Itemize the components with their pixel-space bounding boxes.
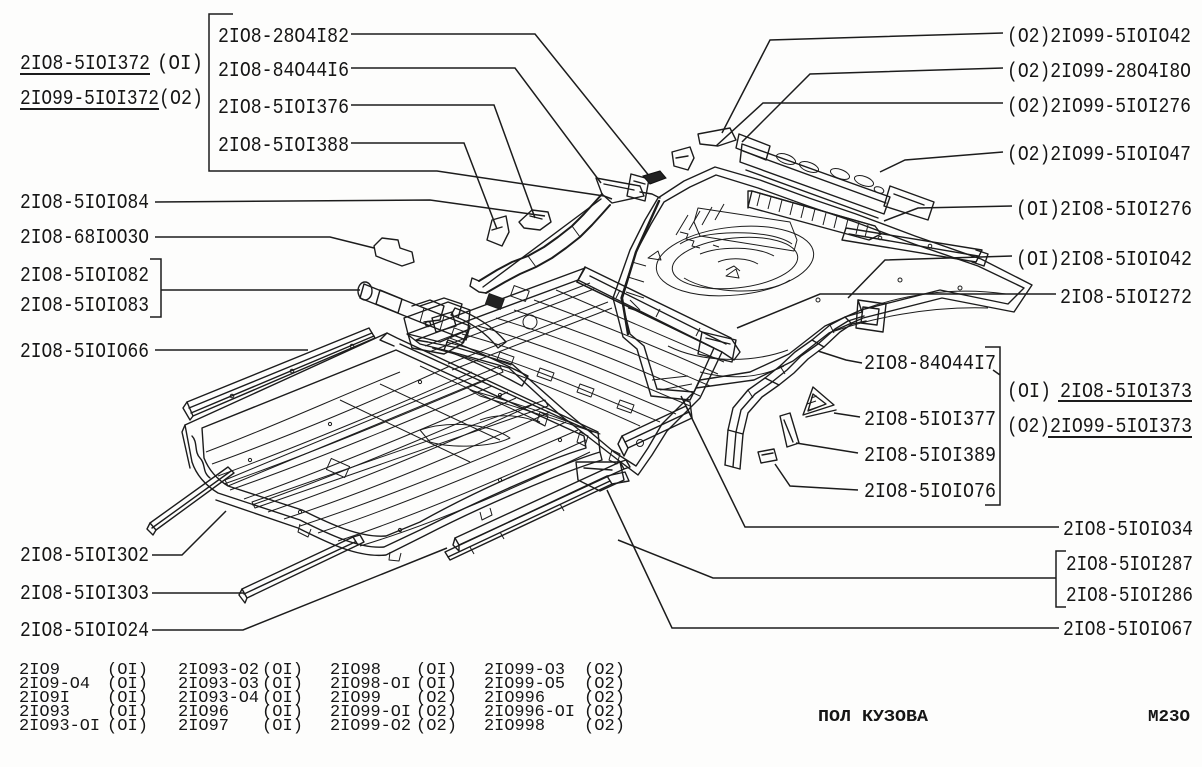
svg-text:(OI): (OI)	[262, 716, 303, 735]
svg-text:2IO8-5IOIO84: 2IO8-5IOIO84	[20, 191, 149, 215]
svg-text:2IO8-5IOIO83: 2IO8-5IOIO83	[20, 294, 149, 318]
svg-text:2IO99-O2: 2IO99-O2	[330, 716, 411, 735]
svg-text:2IO8-84O44I7: 2IO8-84O44I7	[864, 352, 996, 376]
svg-text:2IO8-5IOI372: 2IO8-5IOI372	[20, 52, 150, 76]
svg-text:М23O: М23O	[1148, 707, 1190, 726]
svg-text:(OI): (OI)	[107, 716, 148, 735]
svg-text:2IO8-5IOIO76: 2IO8-5IOIO76	[864, 480, 996, 504]
svg-text:2IO8-5IOIO66: 2IO8-5IOIO66	[20, 340, 149, 364]
svg-text:(O2): (O2)	[159, 87, 203, 111]
svg-text:2IO8-5IOIO34: 2IO8-5IOIO34	[1063, 518, 1193, 542]
svg-text:2IO8-5IOIO82: 2IO8-5IOIO82	[20, 264, 149, 288]
svg-text:2IO8-5IOI377: 2IO8-5IOI377	[864, 408, 996, 432]
svg-text:2IO8-5IOI3O2: 2IO8-5IOI3O2	[20, 544, 149, 568]
svg-text:2IO97: 2IO97	[178, 716, 229, 735]
svg-text:(O2)2IO99-5IOIO42: (O2)2IO99-5IOIO42	[1007, 25, 1191, 49]
svg-text:2IO8-5IOI287: 2IO8-5IOI287	[1066, 553, 1193, 577]
svg-text:(O2)2IO99-5IOI276: (O2)2IO99-5IOI276	[1007, 95, 1191, 119]
svg-text:2IO8-84O44I6: 2IO8-84O44I6	[218, 59, 349, 83]
svg-text:2IO8-5IOIO24: 2IO8-5IOIO24	[20, 619, 149, 643]
svg-text:2IO99-5IOI372: 2IO99-5IOI372	[20, 87, 159, 111]
svg-text:2IO99-5IOI373: 2IO99-5IOI373	[1050, 415, 1192, 439]
svg-text:ПОЛ КУЗОВА: ПОЛ КУЗОВА	[818, 707, 928, 726]
svg-text:(OI): (OI)	[157, 52, 203, 76]
svg-text:(O2): (O2)	[584, 716, 625, 735]
svg-text:(OI): (OI)	[1007, 380, 1051, 404]
svg-text:2IO8-28O4I82: 2IO8-28O4I82	[218, 25, 349, 49]
svg-text:2IO8-5IOI389: 2IO8-5IOI389	[864, 444, 996, 468]
svg-text:2IO8-5IOI272: 2IO8-5IOI272	[1060, 286, 1192, 310]
svg-text:(O2)2IO99-5IOIO47: (O2)2IO99-5IOIO47	[1007, 143, 1191, 167]
svg-text:(OI)2IO8-5IOI276: (OI)2IO8-5IOI276	[1016, 198, 1192, 222]
svg-text:2IO8-5IOI376: 2IO8-5IOI376	[218, 96, 349, 120]
svg-text:2IO93-OI: 2IO93-OI	[19, 716, 100, 735]
svg-text:(O2): (O2)	[416, 716, 457, 735]
svg-text:2IO8-5IOI388: 2IO8-5IOI388	[218, 134, 349, 158]
svg-text:(O2): (O2)	[1007, 415, 1050, 439]
svg-text:(OI)2IO8-5IOIO42: (OI)2IO8-5IOIO42	[1016, 248, 1192, 272]
svg-text:2IO8-68IOO3O: 2IO8-68IOO3O	[20, 226, 149, 250]
svg-text:2IO8-5IOI3O3: 2IO8-5IOI3O3	[20, 582, 149, 606]
svg-text:2IO998: 2IO998	[484, 716, 545, 735]
svg-text:2IO8-5IOI286: 2IO8-5IOI286	[1066, 584, 1193, 608]
svg-text:2IO8-5IOIO67: 2IO8-5IOIO67	[1063, 618, 1193, 642]
svg-text:(O2)2IO99-28O4I8O: (O2)2IO99-28O4I8O	[1007, 60, 1191, 84]
